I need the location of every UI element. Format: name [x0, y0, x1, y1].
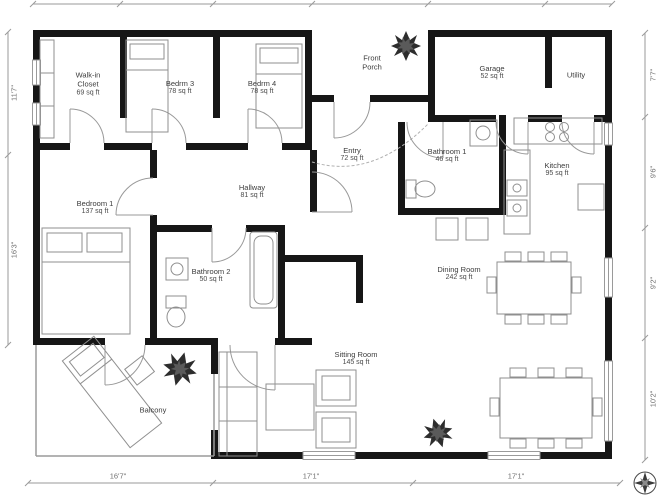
- room-area: 81 sq ft: [239, 192, 265, 201]
- room-area: 72 sq ft: [341, 155, 364, 164]
- room-name: Balcony: [140, 405, 167, 414]
- room-name: Utility: [567, 70, 585, 79]
- room-label-bathroom-1: Bathroom 1 46 sq ft: [428, 147, 467, 165]
- room-name: Kitchen: [544, 161, 569, 170]
- bathtub-icon: [250, 232, 277, 308]
- room-area: 52 sq ft: [479, 73, 504, 82]
- room-name: Bedroom 1: [77, 199, 114, 208]
- room-name: Bathroom 2: [192, 267, 231, 276]
- dimension-label-bottom-2: 17'1": [303, 472, 320, 481]
- room-label-walk-in-closet: Walk-in Closet 69 sq ft: [67, 70, 109, 98]
- dimension-label-bottom-3: 17'1": [508, 472, 525, 481]
- room-area: 137 sq ft: [77, 208, 114, 217]
- room-area: 145 sq ft: [335, 359, 378, 368]
- dining-table-icon: [490, 368, 602, 448]
- plant-icon: [159, 348, 201, 390]
- room-name: Hallway: [239, 183, 265, 192]
- dining-table-icon: [487, 252, 581, 324]
- room-label-bedroom-1: Bedroom 1 137 sq ft: [77, 199, 114, 217]
- room-name: Front Porch: [355, 54, 389, 73]
- bed-icon: [42, 228, 130, 334]
- room-name: Walk-in Closet: [67, 70, 109, 89]
- room-label-front-porch: Front Porch: [355, 54, 389, 73]
- plant-icon: [391, 31, 421, 61]
- bed-icon: [126, 40, 168, 132]
- sink-icon: [470, 120, 497, 146]
- kitchen-counter-icon: [504, 150, 530, 234]
- fridge-icon: [578, 184, 604, 210]
- dimension-label-right-3: 9'2": [649, 277, 658, 289]
- armchair-icon: [316, 370, 356, 448]
- room-name: Entry: [341, 146, 364, 155]
- room-name: Sitting Room: [335, 350, 378, 359]
- room-area: 78 sq ft: [166, 88, 194, 97]
- dimension-label-right-2: 9'6": [649, 166, 658, 178]
- porch-edge-line: [312, 124, 428, 166]
- room-label-bedrm-3: Bedrm 3 78 sq ft: [166, 79, 194, 97]
- room-name: Bedrm 3: [166, 79, 194, 88]
- room-name: Garage: [479, 64, 504, 73]
- room-label-hallway: Hallway 81 sq ft: [239, 183, 265, 201]
- room-label-bedrm-4: Bedrm 4 78 sq ft: [248, 79, 276, 97]
- room-area: 242 sq ft: [437, 274, 480, 283]
- room-area: 46 sq ft: [428, 156, 467, 165]
- room-name: Bathroom 1: [428, 147, 467, 156]
- toilet-icon: [406, 180, 435, 198]
- plant-icon: [419, 414, 457, 452]
- sofa-icon: [219, 352, 257, 456]
- toilet-icon: [166, 296, 186, 327]
- shelving-icon: [40, 40, 54, 138]
- sink-icon: [166, 258, 188, 280]
- room-area: 78 sq ft: [248, 88, 276, 97]
- floor-plan: Walk-in Closet 69 sq ft Bedrm 3 78 sq ft…: [0, 0, 668, 501]
- dimension-label-left-2: 16'3": [10, 242, 19, 259]
- room-label-balcony: Balcony: [140, 405, 167, 414]
- coffee-table-icon: [266, 384, 314, 430]
- room-name: Bedrm 4: [248, 79, 276, 88]
- room-area: 50 sq ft: [192, 276, 231, 285]
- room-label-dining-room: Dining Room 242 sq ft: [437, 265, 480, 283]
- room-name: Dining Room: [437, 265, 480, 274]
- room-label-sitting-room: Sitting Room 145 sq ft: [335, 350, 378, 368]
- dimension-label-right-1: 7'7": [649, 69, 658, 81]
- room-area: 69 sq ft: [67, 89, 109, 98]
- dimension-label-right-4: 10'2": [649, 391, 658, 408]
- room-label-utility: Utility: [567, 70, 585, 79]
- compass-icon: [634, 472, 656, 494]
- dimension-label-left-1: 11'7": [10, 85, 19, 101]
- room-label-garage: Garage 52 sq ft: [479, 64, 504, 82]
- room-label-entry: Entry 72 sq ft: [341, 146, 364, 164]
- room-label-bathroom-2: Bathroom 2 50 sq ft: [192, 267, 231, 285]
- room-label-kitchen: Kitchen 95 sq ft: [544, 161, 569, 179]
- room-area: 95 sq ft: [544, 170, 569, 179]
- dimension-label-bottom-1: 16'7": [110, 472, 127, 481]
- vanity-icon: [436, 218, 488, 240]
